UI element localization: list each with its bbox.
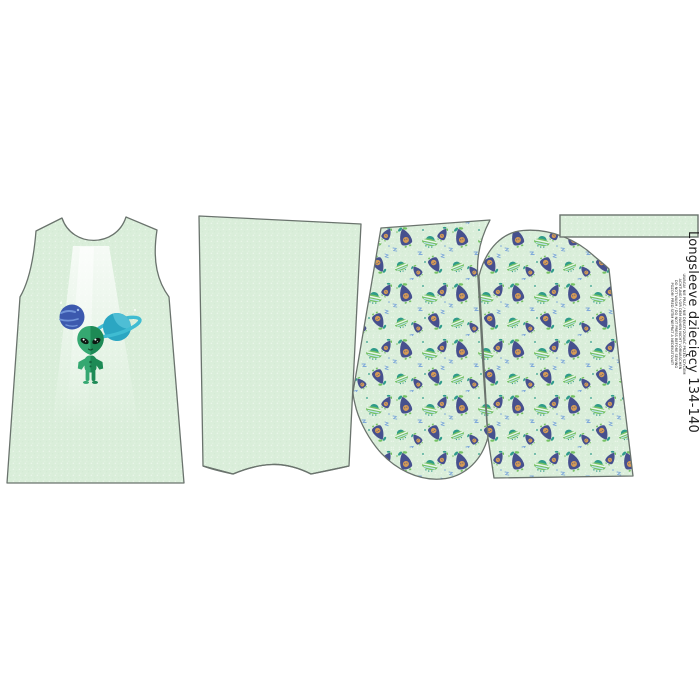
care-line: POZOR! PŘED ŠITÍM NEPRAT A NEDEKATOVAT! [670,255,674,393]
piece-sleeve-left [353,220,490,479]
sparkle [60,302,62,304]
sparkle [134,309,136,311]
panel-pieces-drawing [0,0,700,700]
piece-neckband [560,215,698,237]
panel-title: Longsleeve dziecięcy 134-140 [684,231,700,463]
care-instructions: UWAGA! NIE PRAĆ / NIE DEKATYZOWAĆ PRZED … [669,255,686,393]
care-line: DO NOT WASH / DO NOT PRESS BEFORE SEWING [674,255,678,393]
piece-sleeve-right [479,230,633,478]
piece-back-bodice [199,216,361,474]
fabric-panel-preview: Longsleeve dziecięcy 134-140 UWAGA! NIE … [0,0,700,700]
blue-planet [60,305,85,330]
care-line: UWAGA! NIE PRAĆ / NIE DEKATYZOWAĆ PRZED … [682,255,686,393]
piece-front-bodice [7,217,184,483]
